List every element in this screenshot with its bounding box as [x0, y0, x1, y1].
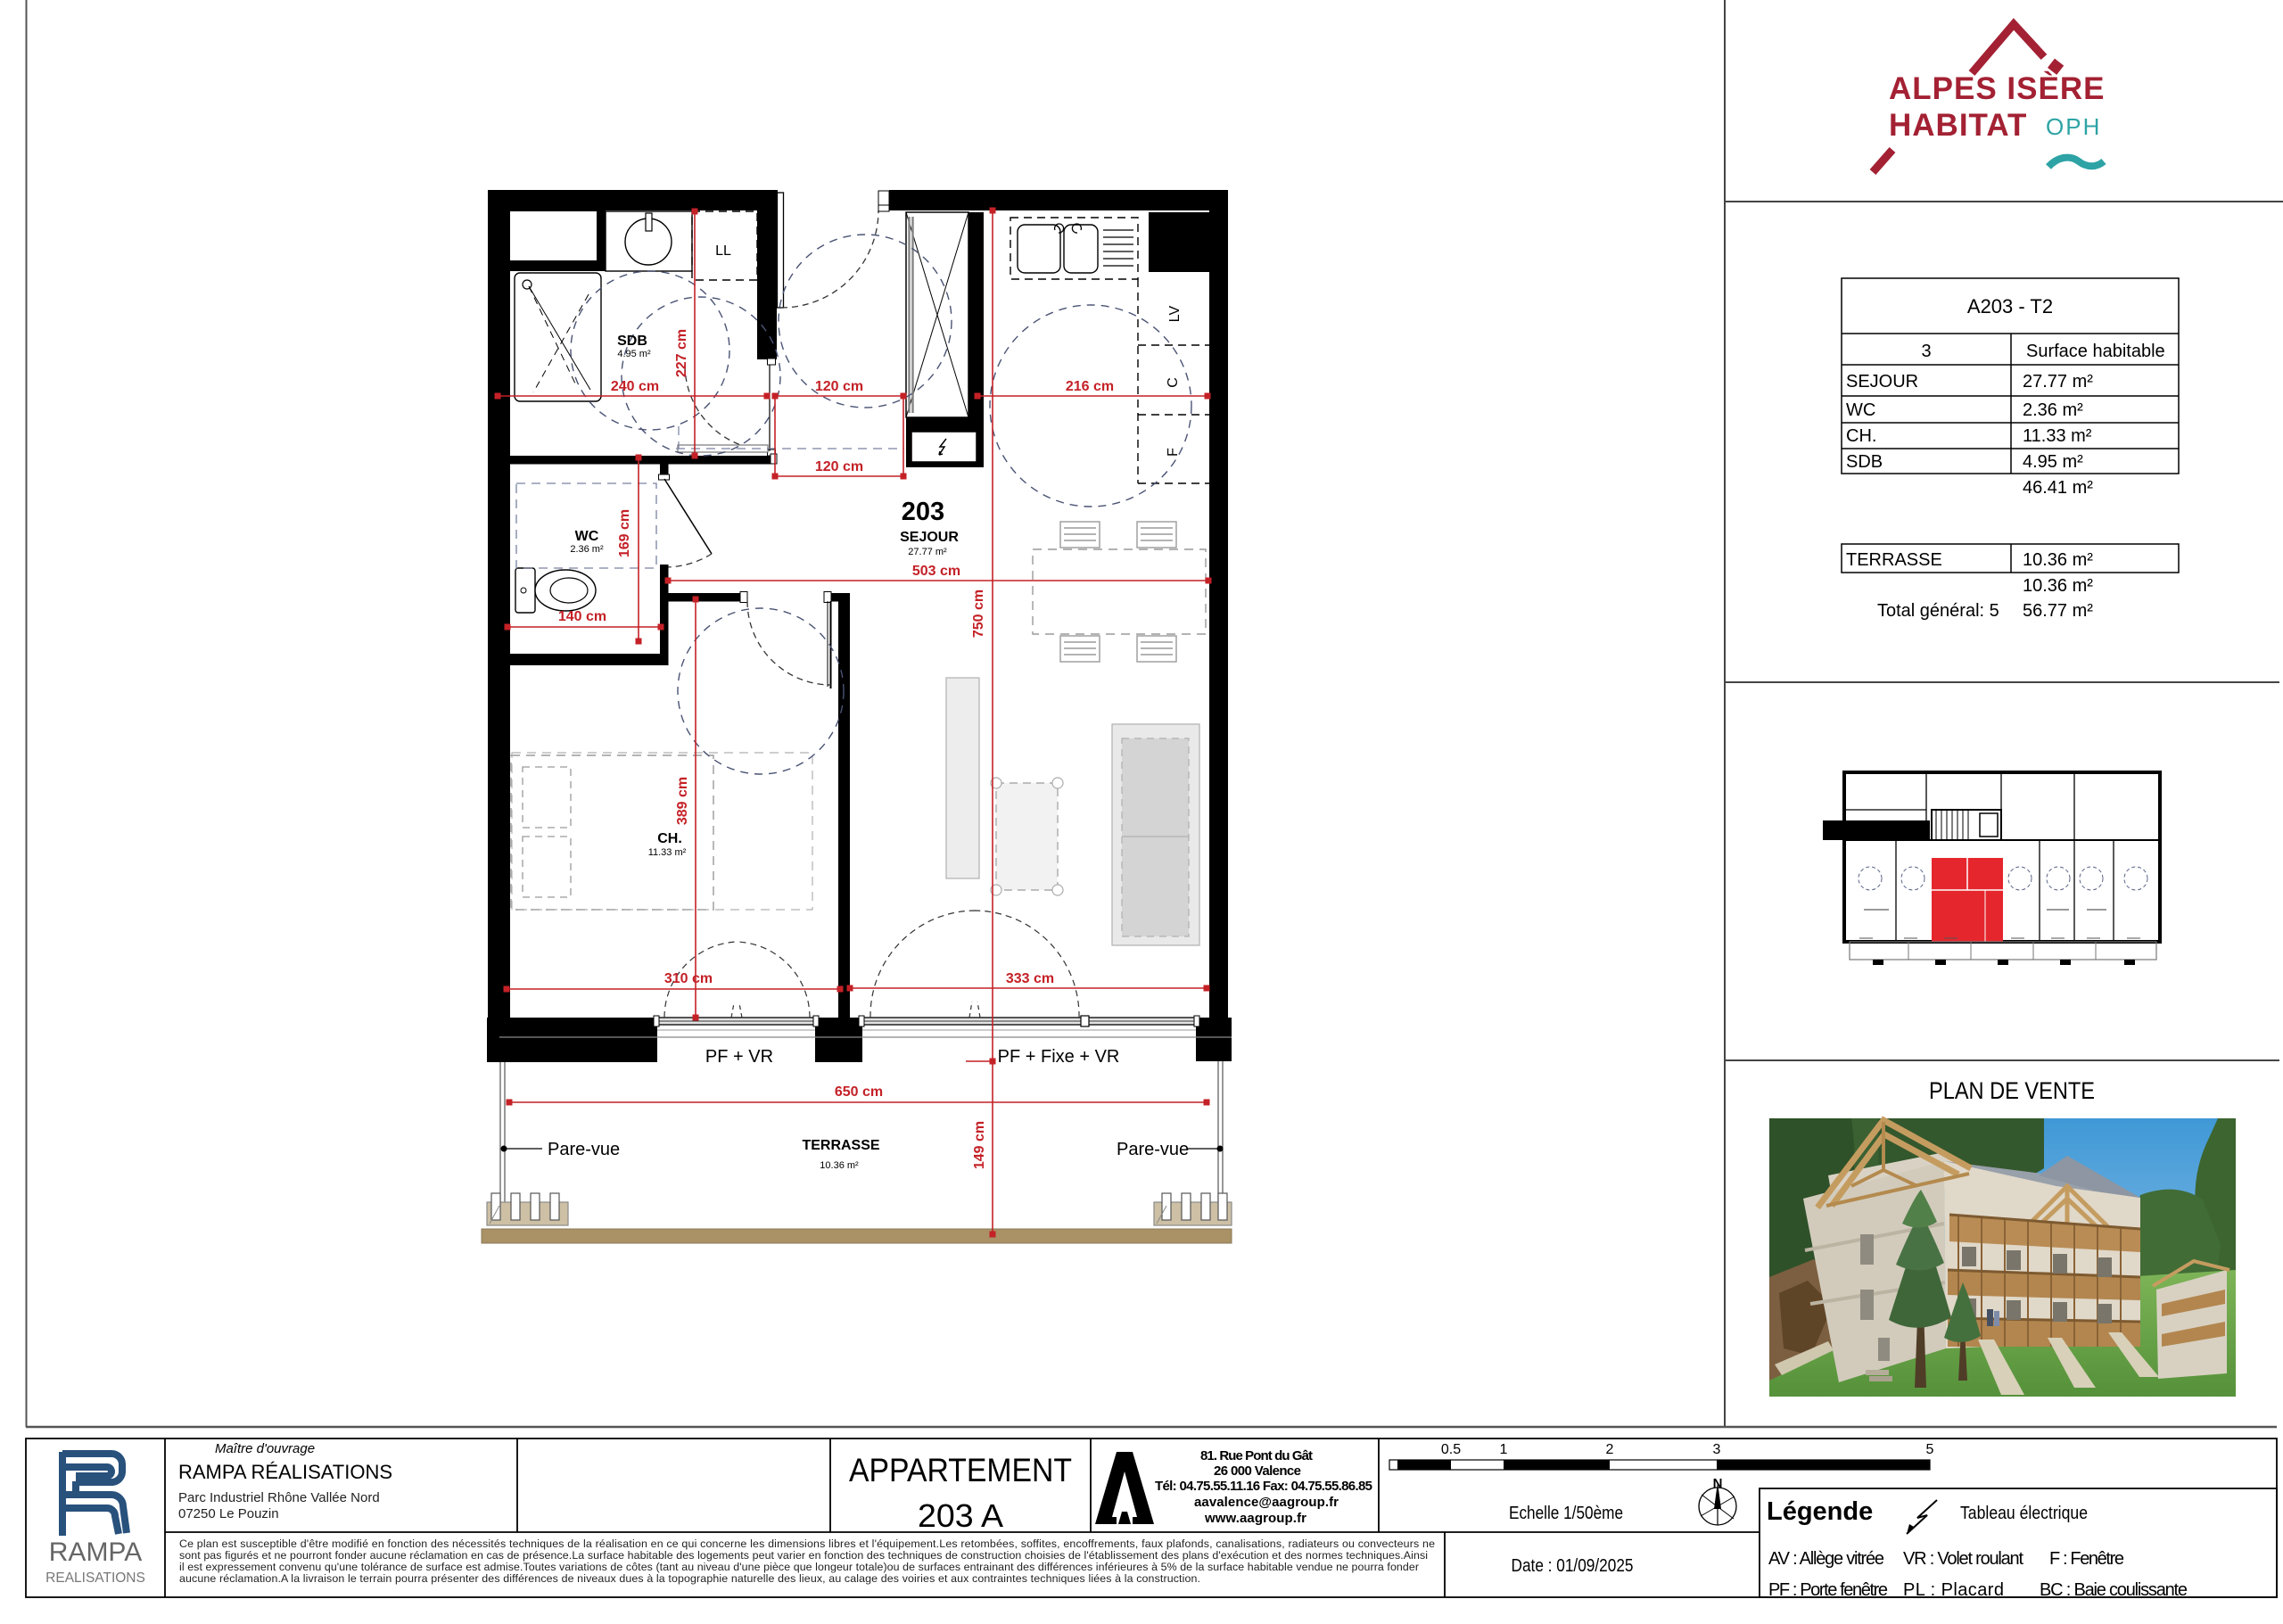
svg-text:AV : Allège vitrée: AV : Allège vitrée [1768, 1549, 1884, 1569]
svg-text:Echelle 1/50ème: Echelle 1/50ème [1509, 1504, 1623, 1523]
svg-text:240 cm: 240 cm [611, 379, 659, 394]
svg-text:11.33 m²: 11.33 m² [648, 847, 687, 858]
svg-text:CH.: CH. [1846, 426, 1876, 446]
svg-text:BC : Baie coulissante: BC : Baie coulissante [2040, 1580, 2188, 1600]
svg-text:SDB: SDB [617, 334, 647, 349]
svg-text:27.77 m²: 27.77 m² [2023, 372, 2093, 392]
svg-text:il est expressement convenu qu: il est expressement convenu qu'une tolér… [179, 1561, 1419, 1573]
svg-text:2.36 m²: 2.36 m² [2023, 400, 2083, 420]
svg-text:120 cm: 120 cm [815, 459, 863, 474]
svg-text:aucune réclamation.A la livrai: aucune réclamation.A la livraison le ter… [179, 1572, 1200, 1585]
svg-text:203 A: 203 A [918, 1497, 1003, 1534]
svg-text:aavalence@aagroup.fr: aavalence@aagroup.fr [1194, 1495, 1339, 1510]
svg-text:APPARTEMENT: APPARTEMENT [849, 1452, 1072, 1488]
svg-text:N: N [1713, 1476, 1723, 1491]
svg-text:750 cm: 750 cm [971, 589, 986, 638]
svg-text:07250 Le Pouzin: 07250 Le Pouzin [178, 1506, 279, 1521]
svg-text:PF + VR: PF + VR [705, 1047, 773, 1067]
svg-text:26 000 Valence: 26 000 Valence [1214, 1463, 1301, 1479]
svg-text:A203 - T2: A203 - T2 [1967, 295, 2053, 317]
svg-text:Surface habitable: Surface habitable [2026, 342, 2165, 361]
svg-text:WC: WC [1846, 400, 1875, 420]
svg-text:1: 1 [1500, 1442, 1508, 1457]
svg-text:333 cm: 333 cm [1006, 971, 1054, 986]
svg-text:TERRASSE: TERRASSE [802, 1138, 879, 1153]
svg-text:LL: LL [715, 243, 731, 259]
svg-text:203: 203 [902, 498, 944, 526]
svg-text:4.95 m²: 4.95 m² [617, 349, 651, 359]
svg-text:PF : Porte fenêtre: PF : Porte fenêtre [1768, 1580, 1888, 1600]
svg-text:Pare-vue: Pare-vue [1117, 1140, 1189, 1159]
svg-text:27.77 m²: 27.77 m² [908, 547, 947, 557]
svg-text:3: 3 [1713, 1442, 1721, 1457]
svg-text:56.77 m²: 56.77 m² [2023, 601, 2093, 621]
svg-text:Total général: 5: Total général: 5 [1877, 601, 1999, 621]
svg-text:310 cm: 310 cm [664, 971, 713, 986]
svg-text:10.36 m²: 10.36 m² [2023, 576, 2093, 596]
svg-text:HABITAT: HABITAT [1889, 108, 2027, 143]
svg-text:5: 5 [1926, 1442, 1934, 1457]
svg-text:503 cm: 503 cm [912, 564, 960, 579]
svg-text:VR : Volet roulant: VR : Volet roulant [1903, 1549, 2023, 1569]
svg-text:F : Fenêtre: F : Fenêtre [2049, 1549, 2124, 1569]
svg-text:3: 3 [1921, 342, 1931, 361]
svg-text:2: 2 [1606, 1442, 1614, 1457]
svg-text:120 cm: 120 cm [815, 379, 863, 394]
svg-text:REALISATIONS: REALISATIONS [45, 1570, 145, 1586]
svg-text:216 cm: 216 cm [1066, 379, 1114, 394]
svg-text:F: F [1166, 448, 1181, 457]
svg-text:81. Rue Pont du Gât: 81. Rue Pont du Gât [1200, 1448, 1313, 1463]
svg-text:RAMPA RÉALISATIONS: RAMPA RÉALISATIONS [178, 1461, 392, 1483]
svg-text:CH.: CH. [657, 831, 682, 846]
svg-text:www.aagroup.fr: www.aagroup.fr [1204, 1511, 1306, 1526]
svg-text:Maître d'ouvrage: Maître d'ouvrage [215, 1441, 315, 1456]
svg-text:Date : 01/09/2025: Date : 01/09/2025 [1512, 1556, 1634, 1576]
svg-text:sont pas figurés et ne pourron: sont pas figurés et ne pourront fonder a… [179, 1549, 1428, 1562]
svg-text:149 cm: 149 cm [972, 1121, 987, 1169]
svg-text:Parc Industriel Rhône Vallée N: Parc Industriel Rhône Vallée Nord [178, 1490, 380, 1505]
svg-text:4.95 m²: 4.95 m² [2023, 452, 2083, 472]
svg-text:650 cm: 650 cm [835, 1084, 883, 1100]
svg-text:TERRASSE: TERRASSE [1846, 550, 1942, 570]
svg-text:SEJOUR: SEJOUR [1846, 372, 1918, 392]
svg-text:227 cm: 227 cm [674, 329, 689, 377]
svg-text:RAMPA: RAMPA [49, 1537, 142, 1567]
svg-text:46.41 m²: 46.41 m² [2023, 478, 2093, 498]
svg-text:SEJOUR: SEJOUR [900, 530, 959, 545]
svg-text:2.36 m²: 2.36 m² [570, 544, 604, 555]
svg-text:Tableau électrique: Tableau électrique [1960, 1504, 2088, 1523]
svg-text:C: C [1166, 377, 1181, 388]
svg-text:0.5: 0.5 [1441, 1442, 1461, 1457]
svg-text:WC: WC [575, 529, 599, 544]
svg-text:Tél: 04.75.55.11.16 Fax: 04.7: Tél: 04.75.55.11.16 Fax: 04.75.55.86.85 [1155, 1479, 1372, 1494]
svg-text:140 cm: 140 cm [558, 609, 606, 624]
svg-text:PF + Fixe + VR: PF + Fixe + VR [998, 1047, 1120, 1067]
svg-text:Pare-vue: Pare-vue [548, 1140, 620, 1159]
svg-text:PLAN DE VENTE: PLAN DE VENTE [1929, 1077, 2095, 1104]
svg-text:SDB: SDB [1846, 452, 1883, 472]
svg-text:ALPES ISÈRE: ALPES ISÈRE [1889, 70, 2105, 106]
svg-text:11.33 m²: 11.33 m² [2023, 426, 2092, 446]
svg-text:Ce plan est susceptible d'être: Ce plan est susceptible d'être modifié e… [179, 1537, 1435, 1550]
svg-text:169 cm: 169 cm [617, 509, 632, 557]
svg-text:Légende: Légende [1767, 1497, 1873, 1526]
svg-text:LV: LV [1167, 305, 1183, 322]
svg-text:389 cm: 389 cm [675, 777, 690, 825]
svg-text:OPH: OPH [2046, 113, 2101, 140]
svg-text:PL : Placard: PL : Placard [1903, 1580, 2004, 1600]
svg-text:10.36 m²: 10.36 m² [2023, 550, 2093, 570]
svg-text:10.36 m²: 10.36 m² [820, 1160, 859, 1171]
